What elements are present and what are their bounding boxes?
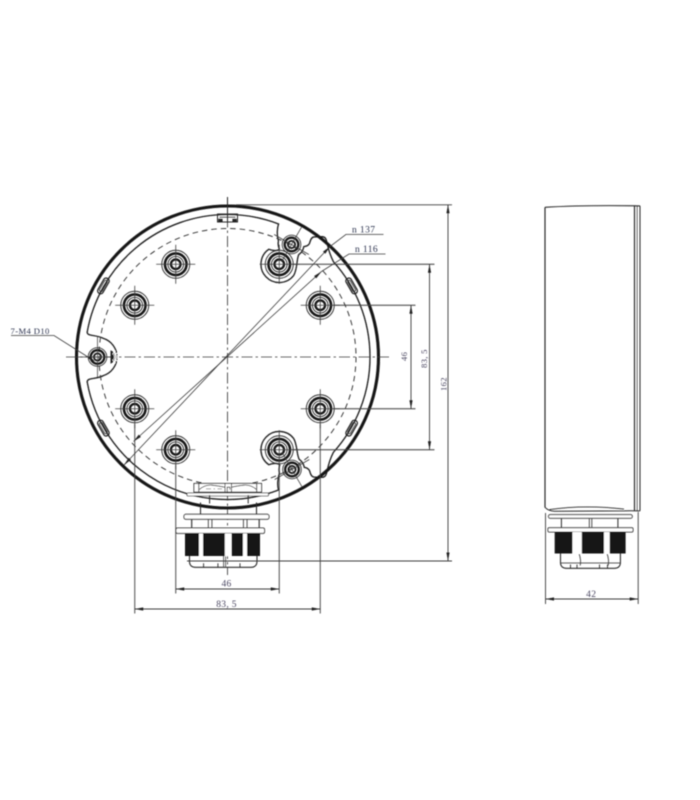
svg-text:42: 42: [586, 590, 596, 600]
svg-text:7-M4 D10: 7-M4 D10: [11, 326, 50, 336]
svg-text:162: 162: [439, 377, 449, 391]
svg-text:n 137: n 137: [352, 225, 375, 235]
svg-text:n 116: n 116: [355, 245, 378, 255]
svg-text:83, 5: 83, 5: [216, 600, 237, 610]
svg-text:46: 46: [221, 580, 231, 590]
svg-text:46: 46: [399, 351, 409, 361]
svg-text:83, 5: 83, 5: [419, 349, 429, 368]
